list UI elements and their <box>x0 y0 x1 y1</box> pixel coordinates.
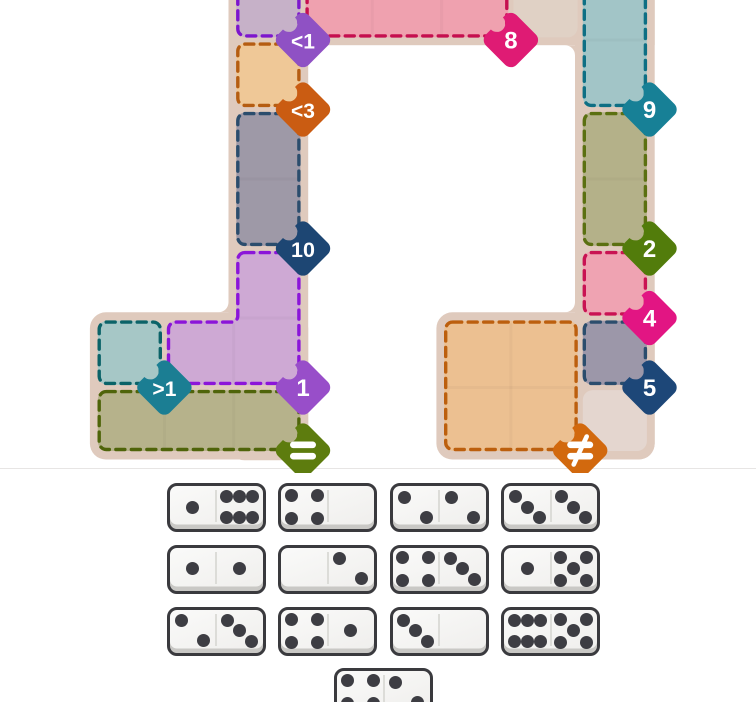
svg-text:9: 9 <box>643 97 656 124</box>
svg-text:<1: <1 <box>291 31 315 54</box>
svg-text:4: 4 <box>643 306 657 333</box>
svg-text:>1: >1 <box>152 378 176 401</box>
svg-text:10: 10 <box>291 238 315 262</box>
svg-text:<3: <3 <box>291 100 315 123</box>
svg-text:5: 5 <box>643 375 656 402</box>
svg-text:2: 2 <box>643 236 656 263</box>
svg-text:8: 8 <box>504 28 517 55</box>
svg-text:1: 1 <box>296 375 309 402</box>
